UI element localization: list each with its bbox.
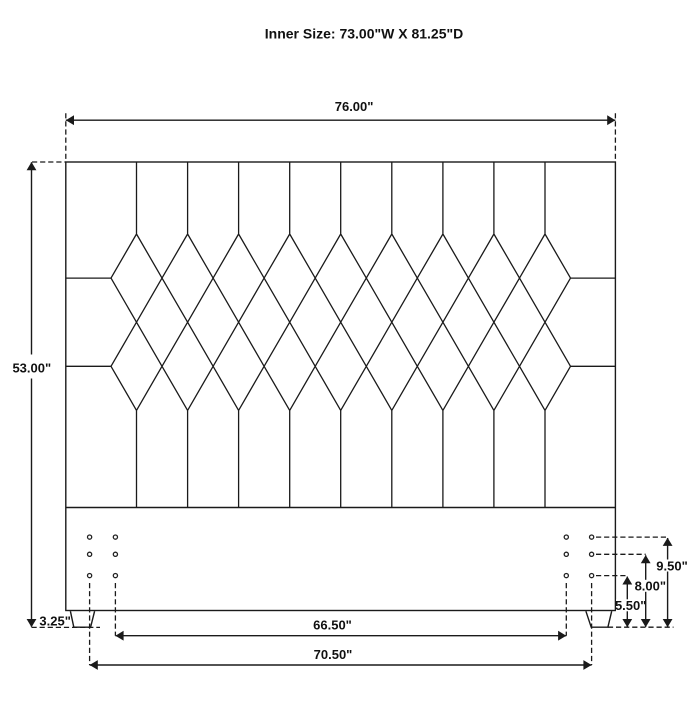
svg-text:76.00": 76.00" — [335, 99, 374, 114]
svg-text:Inner Size: 73.00"W X 81.25"D: Inner Size: 73.00"W X 81.25"D — [265, 26, 463, 42]
svg-text:5.50": 5.50" — [615, 598, 646, 613]
svg-text:53.00": 53.00" — [12, 361, 51, 376]
svg-text:8.00": 8.00" — [635, 579, 666, 594]
svg-text:70.50": 70.50" — [314, 647, 353, 662]
svg-text:9.50": 9.50" — [656, 558, 687, 573]
svg-text:66.50": 66.50" — [313, 617, 352, 632]
svg-text:3.25": 3.25" — [39, 613, 70, 628]
